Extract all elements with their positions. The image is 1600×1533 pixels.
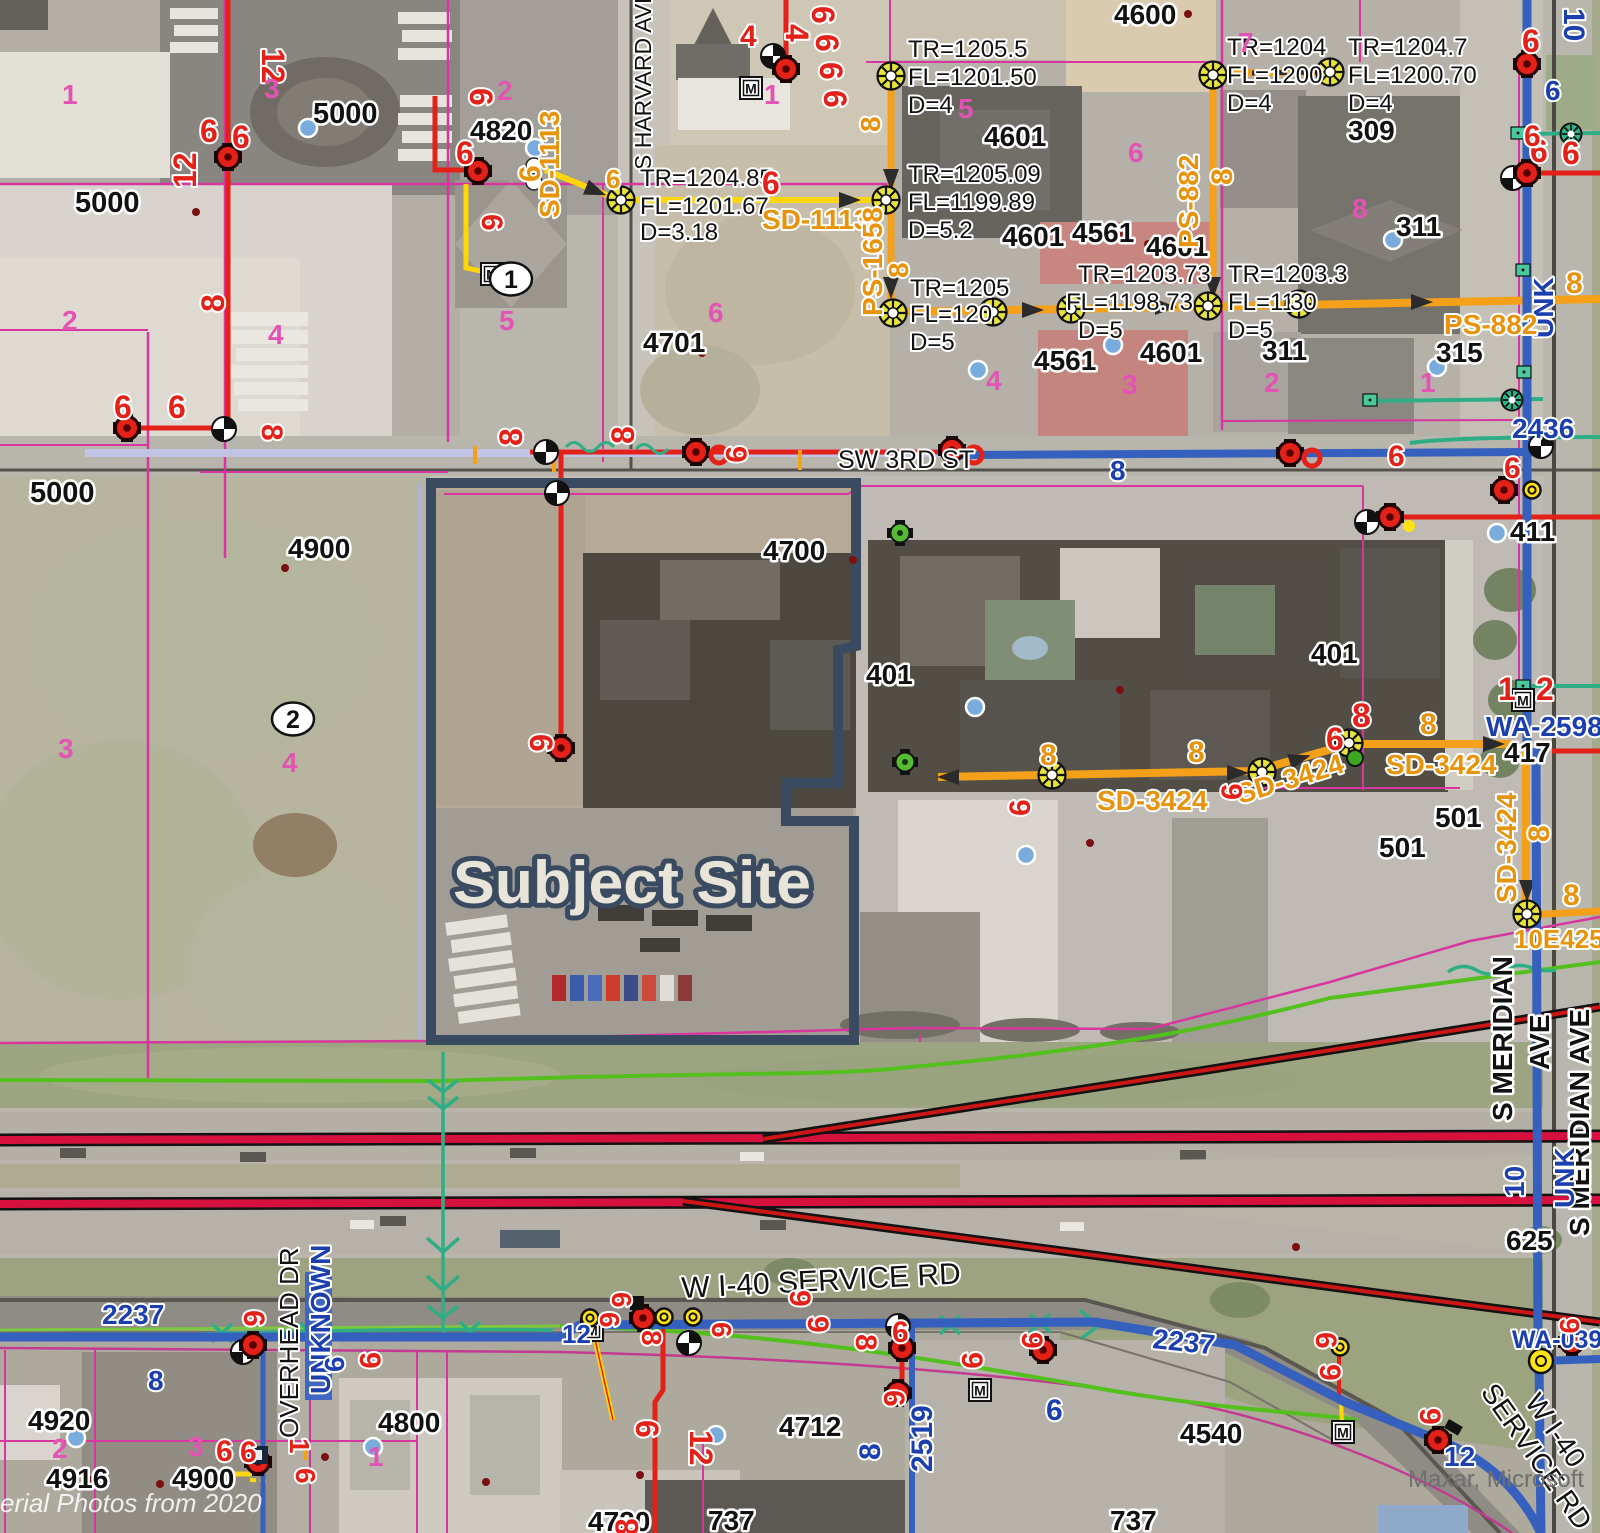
svg-text:2: 2 <box>1264 367 1280 398</box>
svg-text:SD-3424: SD-3424 <box>1386 749 1497 780</box>
svg-text:7: 7 <box>1238 27 1254 58</box>
svg-text:8: 8 <box>605 426 641 444</box>
svg-text:4: 4 <box>268 319 284 350</box>
svg-text:12: 12 <box>167 152 203 188</box>
svg-text:4540: 4540 <box>1180 1418 1242 1449</box>
svg-text:2436: 2436 <box>1512 413 1574 444</box>
svg-text:2237: 2237 <box>102 1299 164 1330</box>
svg-text:6: 6 <box>514 165 547 182</box>
svg-text:D=5: D=5 <box>1228 317 1273 344</box>
svg-text:4: 4 <box>740 20 757 53</box>
svg-text:6: 6 <box>606 1292 637 1308</box>
svg-text:8: 8 <box>1352 697 1371 735</box>
svg-text:FL=1200.70: FL=1200.70 <box>1348 62 1477 89</box>
svg-text:3: 3 <box>264 73 280 104</box>
svg-text:2: 2 <box>497 75 513 106</box>
svg-text:4820: 4820 <box>470 115 532 146</box>
svg-text:4: 4 <box>282 747 298 778</box>
svg-text:4701: 4701 <box>643 327 705 358</box>
svg-text:6: 6 <box>817 90 853 108</box>
svg-text:FL=11: FL=11 <box>1228 289 1295 316</box>
svg-text:FL=1201.67: FL=1201.67 <box>640 193 769 220</box>
svg-text:10: 10 <box>1499 1166 1530 1197</box>
svg-text:UNK: UNK <box>1549 1147 1580 1208</box>
svg-text:30: 30 <box>1290 289 1317 316</box>
svg-text:6: 6 <box>1388 440 1405 473</box>
svg-text:PS-1658: PS-1658 <box>857 207 888 316</box>
svg-text:8: 8 <box>1110 455 1126 486</box>
svg-text:6: 6 <box>232 119 250 155</box>
svg-text:D=4: D=4 <box>908 92 953 119</box>
svg-text:6: 6 <box>1545 75 1561 106</box>
svg-text:5: 5 <box>499 305 515 336</box>
svg-text:6: 6 <box>290 1468 321 1484</box>
svg-text:6: 6 <box>114 389 132 425</box>
svg-text:9: 9 <box>353 1352 386 1369</box>
svg-text:4601: 4601 <box>1002 221 1064 252</box>
svg-text:SD-3424: SD-3424 <box>1491 792 1522 903</box>
svg-text:9: 9 <box>1554 1318 1585 1334</box>
svg-text:4561: 4561 <box>1034 345 1096 376</box>
svg-text:2: 2 <box>52 1433 68 1464</box>
svg-text:FL=1198.73: FL=1198.73 <box>1066 289 1193 316</box>
svg-text:401: 401 <box>1311 638 1358 669</box>
svg-text:4601: 4601 <box>1140 337 1202 368</box>
svg-text:Subject Site: Subject Site <box>453 849 811 916</box>
svg-text:erial Photos from 2020: erial Photos from 2020 <box>0 1488 262 1518</box>
svg-text:D=3.18: D=3.18 <box>640 219 718 246</box>
svg-text:8: 8 <box>1566 267 1583 300</box>
svg-text:10: 10 <box>1557 8 1590 41</box>
svg-text:4601: 4601 <box>984 121 1046 152</box>
svg-text:SD-1113: SD-1113 <box>762 204 869 235</box>
svg-text:4: 4 <box>986 365 1002 396</box>
svg-text:737: 737 <box>708 1505 755 1533</box>
svg-text:6: 6 <box>1004 799 1037 816</box>
svg-text:S HARVARD AVE: S HARVARD AVE <box>630 0 656 170</box>
svg-text:315: 315 <box>1436 337 1483 368</box>
svg-text:9: 9 <box>719 446 752 463</box>
svg-text:8: 8 <box>1352 193 1368 224</box>
svg-text:625: 625 <box>1506 1225 1553 1256</box>
svg-text:6: 6 <box>1524 120 1541 153</box>
svg-text:1: 1 <box>62 79 78 110</box>
svg-text:4920: 4920 <box>28 1405 90 1436</box>
svg-text:8: 8 <box>855 116 886 132</box>
svg-text:TR=1203.73: TR=1203.73 <box>1078 261 1211 288</box>
svg-text:6: 6 <box>216 1435 233 1468</box>
svg-text:6: 6 <box>456 135 474 171</box>
svg-text:1: 1 <box>1420 367 1436 398</box>
svg-text:6: 6 <box>475 214 508 231</box>
svg-text:2: 2 <box>62 305 78 336</box>
svg-text:TR=1205.5: TR=1205.5 <box>908 36 1027 63</box>
svg-text:3: 3 <box>58 733 74 764</box>
svg-text:FL=120: FL=120 <box>910 301 992 328</box>
svg-text:4600: 4600 <box>1114 0 1176 30</box>
svg-text:5: 5 <box>958 93 974 124</box>
svg-text:1: 1 <box>504 266 518 294</box>
svg-text:PS-882: PS-882 <box>1173 155 1204 248</box>
svg-text:FL=1200: FL=1200 <box>1227 62 1322 89</box>
svg-text:6: 6 <box>809 34 845 52</box>
svg-text:501: 501 <box>1435 802 1482 833</box>
svg-text:D=4: D=4 <box>1227 90 1272 117</box>
svg-text:6: 6 <box>1309 1332 1342 1349</box>
svg-text:311: 311 <box>1396 211 1441 242</box>
svg-text:8: 8 <box>195 294 231 312</box>
svg-text:2519: 2519 <box>906 1405 939 1472</box>
svg-text:6: 6 <box>594 1312 625 1328</box>
svg-text:9: 9 <box>1313 1364 1346 1381</box>
svg-text:6: 6 <box>813 62 849 80</box>
svg-text:FL=1201.50: FL=1201.50 <box>908 64 1037 91</box>
svg-text:6: 6 <box>463 88 499 106</box>
svg-text:OVERHEAD DR: OVERHEAD DR <box>274 1247 304 1438</box>
svg-text:12: 12 <box>683 1430 719 1466</box>
svg-text:FL=1199.89: FL=1199.89 <box>908 189 1035 216</box>
svg-text:9: 9 <box>1015 1332 1048 1349</box>
svg-text:S MERIDIAN: S MERIDIAN <box>1487 956 1518 1121</box>
svg-text:6: 6 <box>1562 135 1580 171</box>
svg-text:8: 8 <box>1040 739 1057 772</box>
svg-text:9: 9 <box>1413 1408 1446 1425</box>
svg-text:8: 8 <box>883 262 914 278</box>
svg-text:737: 737 <box>1110 1505 1157 1533</box>
svg-text:D=4: D=4 <box>1348 90 1393 117</box>
svg-text:4561: 4561 <box>1072 217 1134 248</box>
svg-text:6: 6 <box>1522 23 1540 59</box>
svg-text:411: 411 <box>1510 516 1555 547</box>
svg-text:6: 6 <box>1216 783 1249 800</box>
svg-text:TR=1204.85: TR=1204.85 <box>640 165 773 192</box>
svg-text:9: 9 <box>783 1290 816 1307</box>
svg-text:1: 1 <box>764 79 780 110</box>
svg-text:2: 2 <box>286 706 300 734</box>
svg-text:2237: 2237 <box>1151 1323 1216 1360</box>
svg-text:8: 8 <box>148 1365 164 1396</box>
svg-text:6: 6 <box>240 1436 257 1469</box>
svg-text:8: 8 <box>1523 825 1556 842</box>
svg-text:8: 8 <box>255 424 288 441</box>
svg-text:6: 6 <box>200 113 218 149</box>
svg-text:3: 3 <box>1122 369 1138 400</box>
svg-text:6: 6 <box>762 165 780 201</box>
svg-text:2: 2 <box>1536 671 1554 707</box>
svg-text:8: 8 <box>1420 708 1437 741</box>
svg-text:D=5: D=5 <box>1078 317 1123 344</box>
svg-text:309: 309 <box>1348 115 1395 146</box>
svg-text:6: 6 <box>523 734 559 752</box>
svg-text:8: 8 <box>849 1334 882 1351</box>
svg-text:4900: 4900 <box>288 533 350 564</box>
svg-text:4800: 4800 <box>378 1407 440 1438</box>
svg-text:6: 6 <box>1046 1394 1063 1427</box>
svg-text:1: 1 <box>368 1441 384 1472</box>
svg-text:8: 8 <box>636 1330 667 1346</box>
svg-text:1: 1 <box>1498 671 1516 707</box>
svg-text:8: 8 <box>1188 736 1205 769</box>
svg-text:5000: 5000 <box>313 98 378 130</box>
svg-text:6: 6 <box>1504 452 1521 485</box>
svg-text:1: 1 <box>284 1438 315 1454</box>
svg-text:10E425: 10E425 <box>1514 924 1600 954</box>
svg-text:6: 6 <box>805 6 841 24</box>
svg-text:TR=1205: TR=1205 <box>910 275 1009 302</box>
svg-text:5000: 5000 <box>30 477 95 509</box>
svg-text:AVE: AVE <box>1524 1015 1555 1071</box>
svg-text:9: 9 <box>801 1316 834 1333</box>
svg-text:SD-1113: SD-1113 <box>534 111 565 218</box>
svg-text:D=5.2: D=5.2 <box>908 217 973 244</box>
svg-text:SD-3424: SD-3424 <box>1097 785 1208 816</box>
svg-text:6: 6 <box>168 389 186 425</box>
svg-text:Maxar, Microsoft: Maxar, Microsoft <box>1408 1466 1584 1493</box>
svg-text:6: 6 <box>1326 721 1344 757</box>
svg-text:PS-882: PS-882 <box>1444 309 1537 340</box>
svg-text:8: 8 <box>854 1443 887 1460</box>
svg-text:401: 401 <box>866 659 913 690</box>
svg-text:12: 12 <box>562 1319 591 1349</box>
svg-text:TR=1205.09: TR=1205.09 <box>908 161 1041 188</box>
svg-text:6: 6 <box>877 1390 910 1407</box>
svg-text:SW 3RD ST: SW 3RD ST <box>838 446 974 474</box>
svg-text:4712: 4712 <box>779 1411 841 1442</box>
svg-text:6: 6 <box>319 1356 350 1372</box>
svg-text:8: 8 <box>609 1518 645 1533</box>
svg-text:3: 3 <box>188 1431 204 1462</box>
svg-text:WA-2598: WA-2598 <box>1486 711 1600 742</box>
svg-text:6: 6 <box>708 297 724 328</box>
svg-text:6: 6 <box>892 1316 909 1349</box>
svg-text:6: 6 <box>237 1310 270 1327</box>
svg-text:6: 6 <box>706 1322 737 1338</box>
svg-text:4700: 4700 <box>763 535 825 566</box>
svg-text:8: 8 <box>493 428 529 446</box>
svg-text:5000: 5000 <box>75 187 140 219</box>
svg-text:9: 9 <box>955 1352 988 1369</box>
svg-text:6: 6 <box>1128 137 1144 168</box>
svg-text:6: 6 <box>629 1420 665 1438</box>
svg-text:8: 8 <box>1206 168 1239 185</box>
svg-text:501: 501 <box>1379 832 1426 863</box>
svg-text:D=5: D=5 <box>910 329 955 356</box>
svg-text:TR=1204.7: TR=1204.7 <box>1348 34 1467 61</box>
svg-text:8: 8 <box>1563 879 1580 912</box>
svg-text:TR=1203.3: TR=1203.3 <box>1228 261 1347 288</box>
svg-text:6: 6 <box>606 164 620 194</box>
